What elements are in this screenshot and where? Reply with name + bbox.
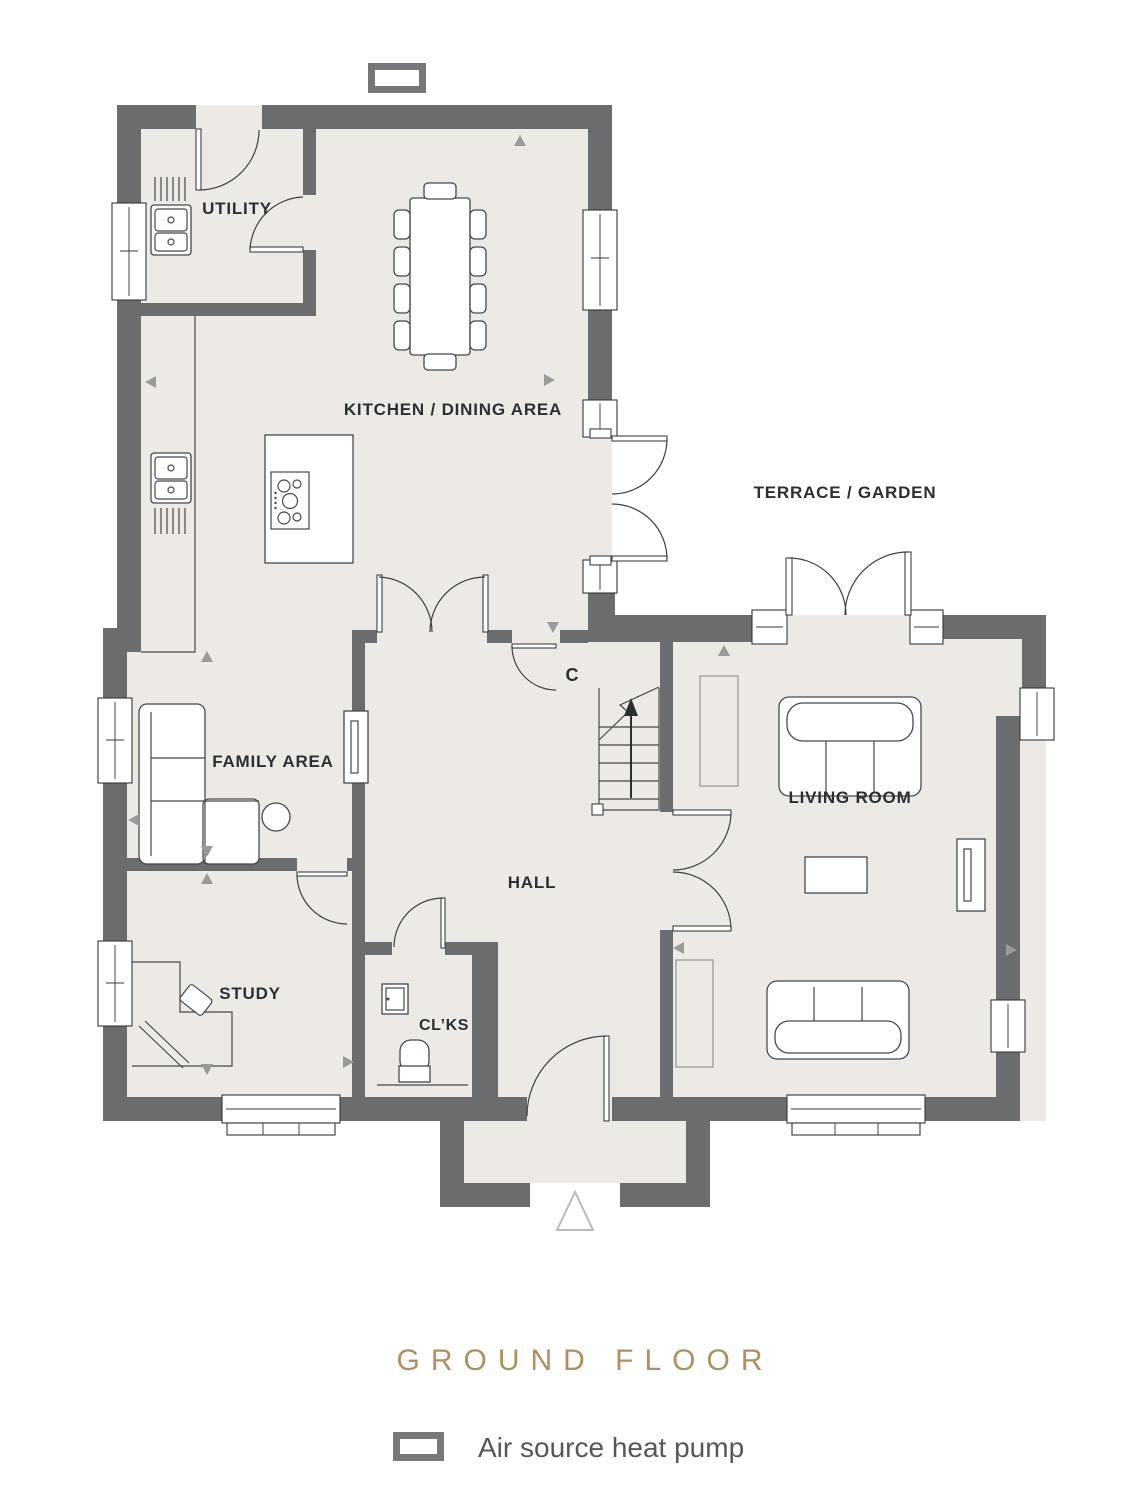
legend: Air source heat pump	[397, 1432, 745, 1463]
bay-window	[222, 1095, 340, 1135]
alcove-cabinet	[676, 960, 713, 1067]
window	[1020, 688, 1054, 740]
window	[991, 1000, 1025, 1052]
stair-newel	[592, 804, 603, 815]
window	[98, 941, 132, 1026]
room-label-hall: HALL	[508, 873, 557, 892]
legend-heat-pump-swatch-icon	[397, 1436, 441, 1458]
entrance-marker-triangle	[557, 1192, 593, 1230]
heat-pump-symbol-icon	[372, 67, 423, 90]
room-label-living-room: LIVING ROOM	[788, 788, 911, 807]
round-side-table	[262, 803, 290, 831]
living-media-unit	[957, 839, 985, 911]
sofa-bottom	[767, 981, 909, 1059]
coffee-table	[805, 857, 867, 893]
floorplan-page: UTILITY KITCHEN / DINING AREA TERRACE / …	[0, 0, 1148, 1506]
kitchen-island	[265, 435, 353, 563]
alcove-cabinet	[700, 676, 738, 786]
room-label-terrace-garden: TERRACE / GARDEN	[754, 483, 937, 502]
room-label-family-area: FAMILY AREA	[212, 752, 334, 771]
french-doors-living-terrace	[786, 552, 911, 615]
room-label-study: STUDY	[219, 984, 281, 1003]
room-label-kitchen-dining: KITCHEN / DINING AREA	[344, 400, 562, 419]
basin-icon	[382, 984, 408, 1014]
sofa-top	[779, 697, 921, 796]
room-label-cloakroom: CL’KS	[419, 1017, 469, 1034]
window	[98, 698, 132, 783]
legend-label: Air source heat pump	[478, 1432, 744, 1463]
window	[752, 610, 787, 644]
window	[583, 210, 617, 310]
room-label-utility: UTILITY	[202, 199, 272, 218]
floor-title: GROUND FLOOR	[396, 1344, 773, 1377]
ground-floor-plan: UTILITY KITCHEN / DINING AREA TERRACE / …	[0, 0, 1148, 1506]
window	[910, 610, 943, 644]
window	[112, 203, 146, 300]
bay-window	[787, 1095, 925, 1135]
family-media-unit	[344, 711, 368, 783]
room-label-cupboard: C	[566, 665, 579, 685]
